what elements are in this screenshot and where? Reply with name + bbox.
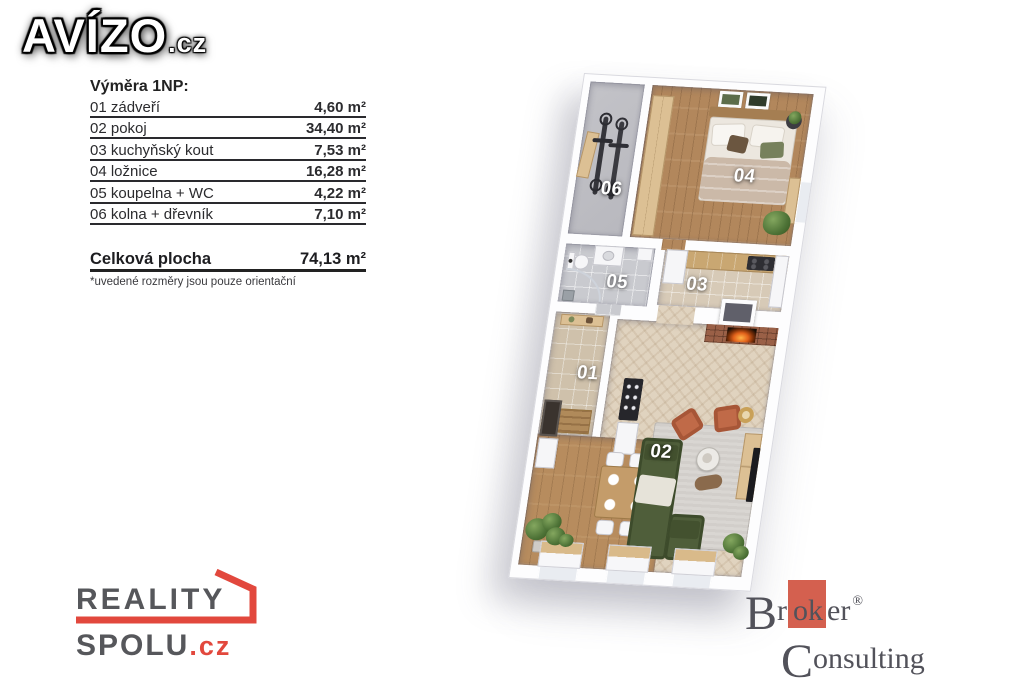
wall-picture <box>745 92 771 109</box>
sofa-cushion <box>669 520 701 540</box>
room-area-value: 7,10 m² <box>314 206 366 223</box>
room-label-text: 06 kolna + dřevník <box>90 206 213 223</box>
room-area-value: 4,22 m² <box>314 185 366 202</box>
table-row: 03 kuchyňský kout 7,53 m² <box>90 139 366 161</box>
disclaimer-text: *uvedené rozměry jsou pouze orientační <box>90 276 366 288</box>
registered-mark-icon: ® <box>852 594 863 609</box>
accent-pillow <box>760 142 784 159</box>
room-label-text: 05 koupelna + WC <box>90 185 214 202</box>
room-area-value: 4,60 m² <box>314 99 366 116</box>
room-area-value: 7,53 m² <box>314 142 366 159</box>
reality-spolu-word2: SPOLU <box>76 629 189 662</box>
listing-image: AVÍZO.cz Výměra 1NP: 01 zádveří 4,60 m² … <box>0 0 1024 683</box>
wall-picture <box>718 91 744 108</box>
reality-spolu-line2: SPOLU.cz <box>76 629 231 663</box>
broker-post: er <box>827 594 850 627</box>
area-table: Výměra 1NP: 01 zádveří 4,60 m² 02 pokoj … <box>90 78 366 288</box>
avizo-logo: AVÍZO.cz <box>22 8 207 63</box>
reality-spolu-tld: .cz <box>189 631 231 661</box>
broker-line2: Consulting <box>781 634 965 683</box>
total-area-row: Celková plocha 74,13 m² <box>90 249 366 272</box>
floorplan: 01 02 03 04 05 06 <box>508 73 826 592</box>
table-row: 02 pokoj 34,40 m² <box>90 118 366 140</box>
avizo-logo-tld: .cz <box>168 28 207 58</box>
table-row: 01 zádveří 4,60 m² <box>90 96 366 118</box>
table-row: 06 kolna + dřevník 7,10 m² <box>90 204 366 226</box>
broker-consulting-logo: Broker® Consulting <box>745 580 965 680</box>
avizo-logo-text: AVÍZO <box>22 9 167 62</box>
bathroom-door-gap <box>595 304 622 316</box>
total-area-value: 74,13 m² <box>300 250 366 269</box>
sofa-blanket <box>634 474 676 507</box>
room-number-05: 05 <box>605 271 630 294</box>
table-row: 04 ložnice 16,28 m² <box>90 161 366 183</box>
kitchen-passage <box>656 305 696 325</box>
room-number-06: 06 <box>599 178 624 201</box>
dining-chair <box>595 520 615 536</box>
table-row: 05 koupelna + WC 4,22 m² <box>90 182 366 204</box>
corner-sink <box>636 248 653 262</box>
console-decor <box>586 317 594 323</box>
consulting-rest: onsulting <box>813 642 925 675</box>
broker-pre: r <box>777 594 787 627</box>
fireplace-firebox <box>726 327 757 343</box>
room-label-text: 02 pokoj <box>90 120 147 137</box>
total-area-label: Celková plocha <box>90 250 211 269</box>
plant <box>732 545 750 560</box>
entry-console <box>560 314 604 327</box>
room-area-value: 34,40 m² <box>306 120 366 137</box>
room-number-04: 04 <box>732 165 757 188</box>
broker-initial: B <box>745 586 777 641</box>
broker-line1: Broker® <box>745 580 965 641</box>
area-table-heading: Výměra 1NP: <box>90 78 366 96</box>
room-area-value: 16,28 m² <box>306 163 366 180</box>
room-number-02: 02 <box>649 441 674 464</box>
chimney <box>718 299 757 327</box>
cooktop <box>746 256 775 272</box>
room-label-text: 01 zádveří <box>90 99 160 116</box>
consulting-initial: C <box>781 634 813 683</box>
broker-highlight: ok <box>788 580 826 628</box>
room-number-03: 03 <box>685 274 710 297</box>
reality-spolu-word1: REALITY <box>76 583 225 617</box>
armchair <box>713 404 741 433</box>
window-bench <box>671 548 718 576</box>
shower-drain-box <box>562 290 575 302</box>
reality-spolu-logo: REALITY SPOLU.cz <box>72 568 267 668</box>
room-number-01: 01 <box>575 362 600 385</box>
room-label-text: 03 kuchyňský kout <box>90 142 213 159</box>
room-label-text: 04 ložnice <box>90 163 158 180</box>
window-bench <box>605 544 652 572</box>
